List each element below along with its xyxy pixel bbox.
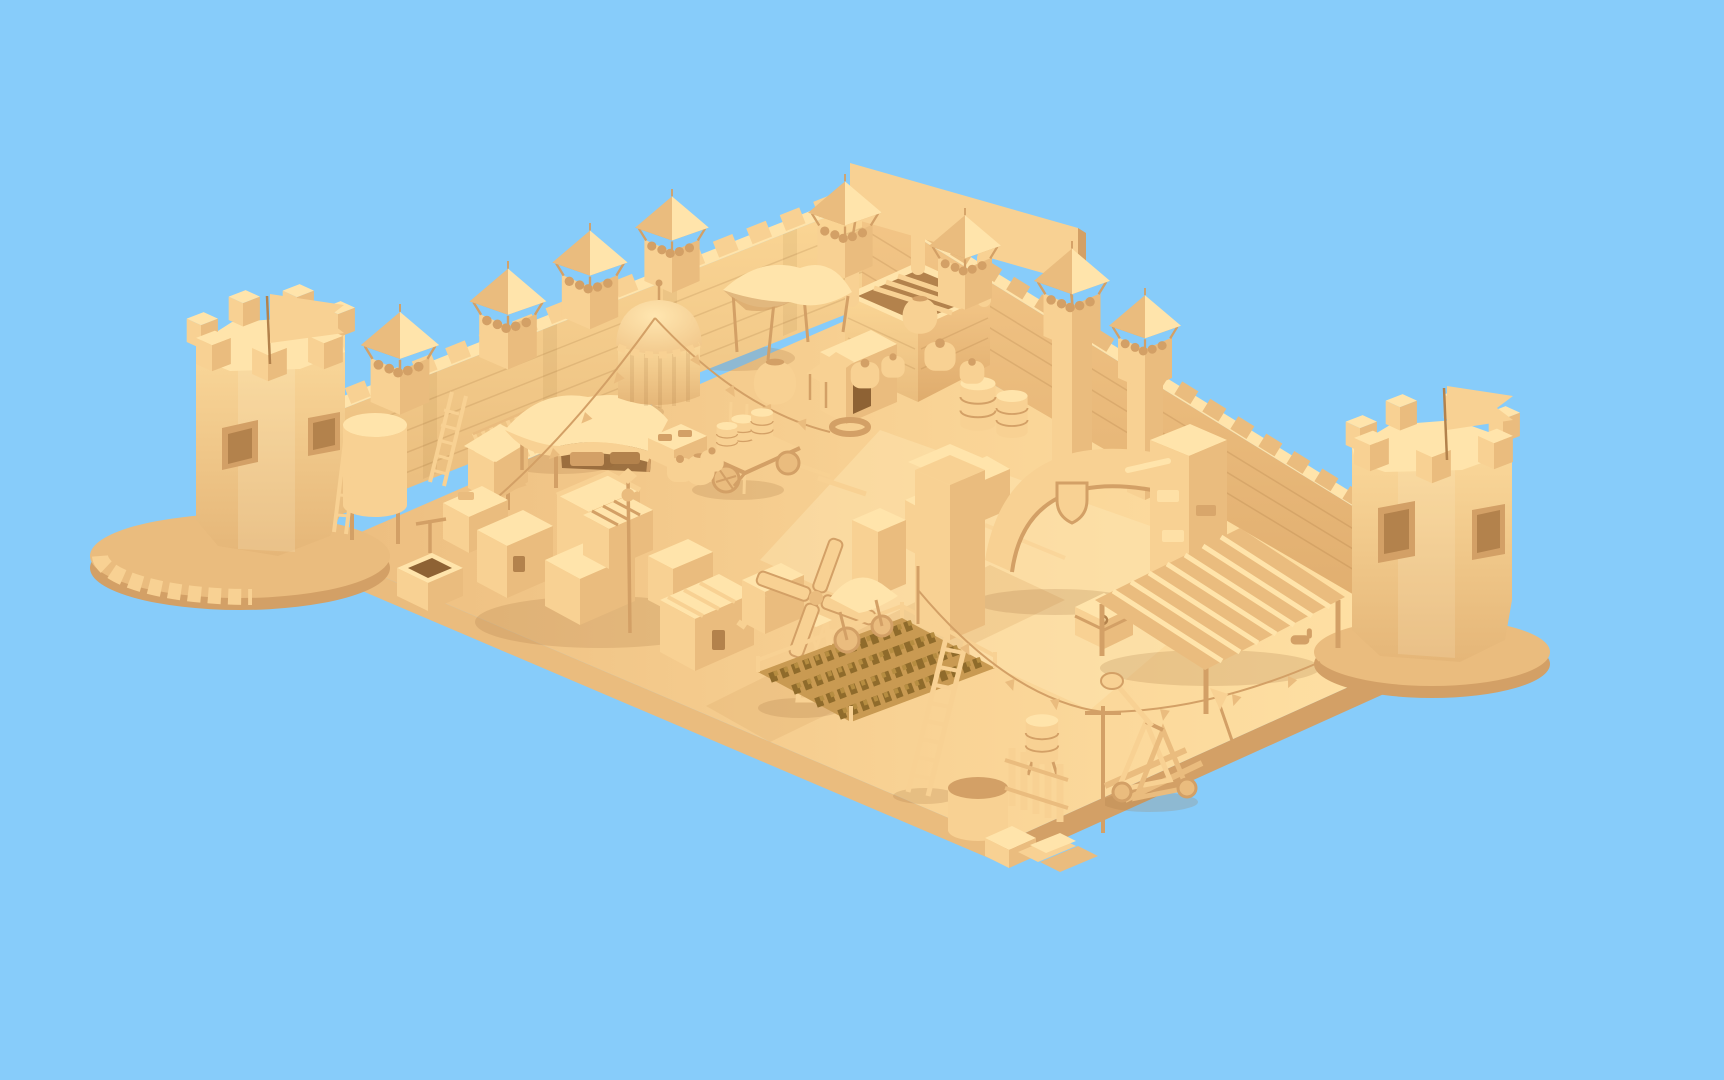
water-barrel [960, 377, 995, 431]
render-canvas [0, 0, 1724, 1080]
shield-emblem [1057, 483, 1087, 523]
gate-pillar-left [908, 444, 992, 640]
water-barrel [996, 390, 1027, 438]
